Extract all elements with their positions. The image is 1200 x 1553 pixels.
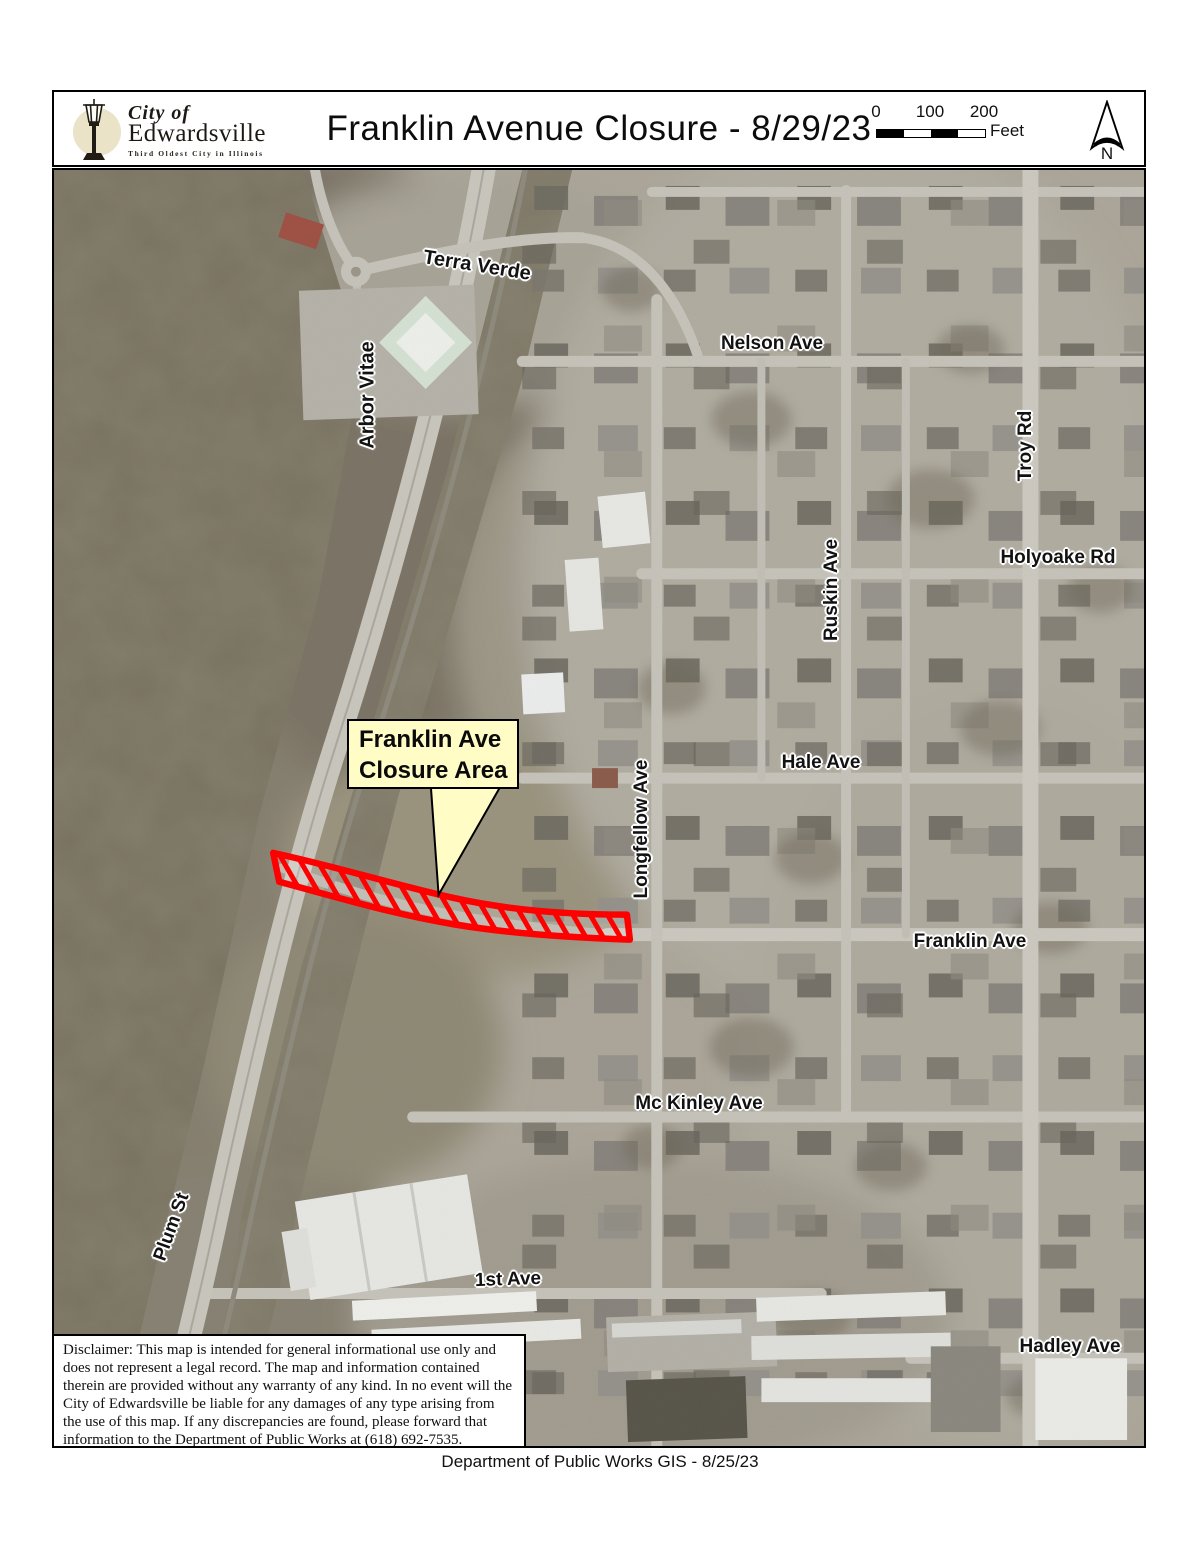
scale-bar: 0 100 200 Feet	[876, 102, 1036, 158]
map-canvas: Terra VerdeArbor VitaeNelson AveTroy RdH…	[52, 168, 1146, 1448]
north-label: N	[1101, 144, 1113, 164]
scale-bar-segments	[876, 129, 986, 138]
closure-callout: Franklin Ave Closure Area	[347, 719, 519, 789]
scale-unit-label: Feet	[990, 124, 1024, 138]
scale-tick-0: 0	[871, 102, 880, 122]
callout-line-2: Closure Area	[359, 755, 517, 786]
logo-name-line: Edwardsville	[128, 122, 266, 146]
disclaimer-text: Disclaimer: This map is intended for gen…	[63, 1342, 512, 1448]
lamp-post-icon	[64, 96, 126, 162]
logo-tagline: Third Oldest City in Illinois	[128, 149, 266, 158]
disclaimer-box: Disclaimer: This map is intended for gen…	[52, 1334, 526, 1448]
aerial-imagery	[54, 170, 1144, 1446]
scale-tick-100: 100	[916, 102, 944, 122]
north-arrow: N	[1084, 100, 1130, 164]
city-logo: City of Edwardsville Third Oldest City i…	[64, 96, 364, 164]
map-header: City of Edwardsville Third Oldest City i…	[52, 90, 1146, 167]
footer-credit: Department of Public Works GIS - 8/25/23	[0, 1452, 1200, 1472]
scale-tick-200: 200	[970, 102, 998, 122]
map-document: City of Edwardsville Third Oldest City i…	[0, 0, 1200, 1553]
callout-line-1: Franklin Ave	[359, 724, 517, 755]
